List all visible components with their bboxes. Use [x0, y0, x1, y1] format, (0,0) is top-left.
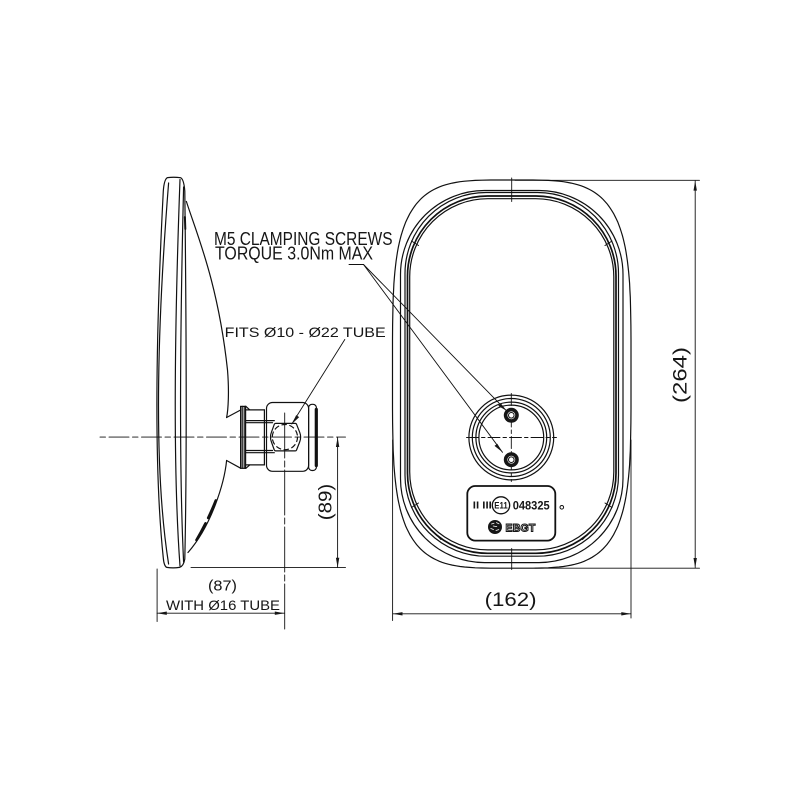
svg-text:(87): (87) [208, 578, 237, 595]
svg-text:(89): (89) [316, 484, 336, 521]
svg-text:II III: II III [473, 501, 492, 512]
svg-text:048325: 048325 [513, 499, 550, 513]
svg-text:(264): (264) [671, 347, 692, 403]
svg-text:TORQUE 3.0Nm MAX: TORQUE 3.0Nm MAX [215, 244, 373, 264]
svg-text:(162): (162) [485, 590, 537, 611]
svg-text:E11: E11 [494, 501, 508, 511]
svg-text:WITH Ø16 TUBE: WITH Ø16 TUBE [166, 597, 280, 613]
svg-text:FITS Ø10 - Ø22 TUBE: FITS Ø10 - Ø22 TUBE [225, 324, 386, 340]
svg-text:EBGT: EBGT [506, 523, 536, 535]
